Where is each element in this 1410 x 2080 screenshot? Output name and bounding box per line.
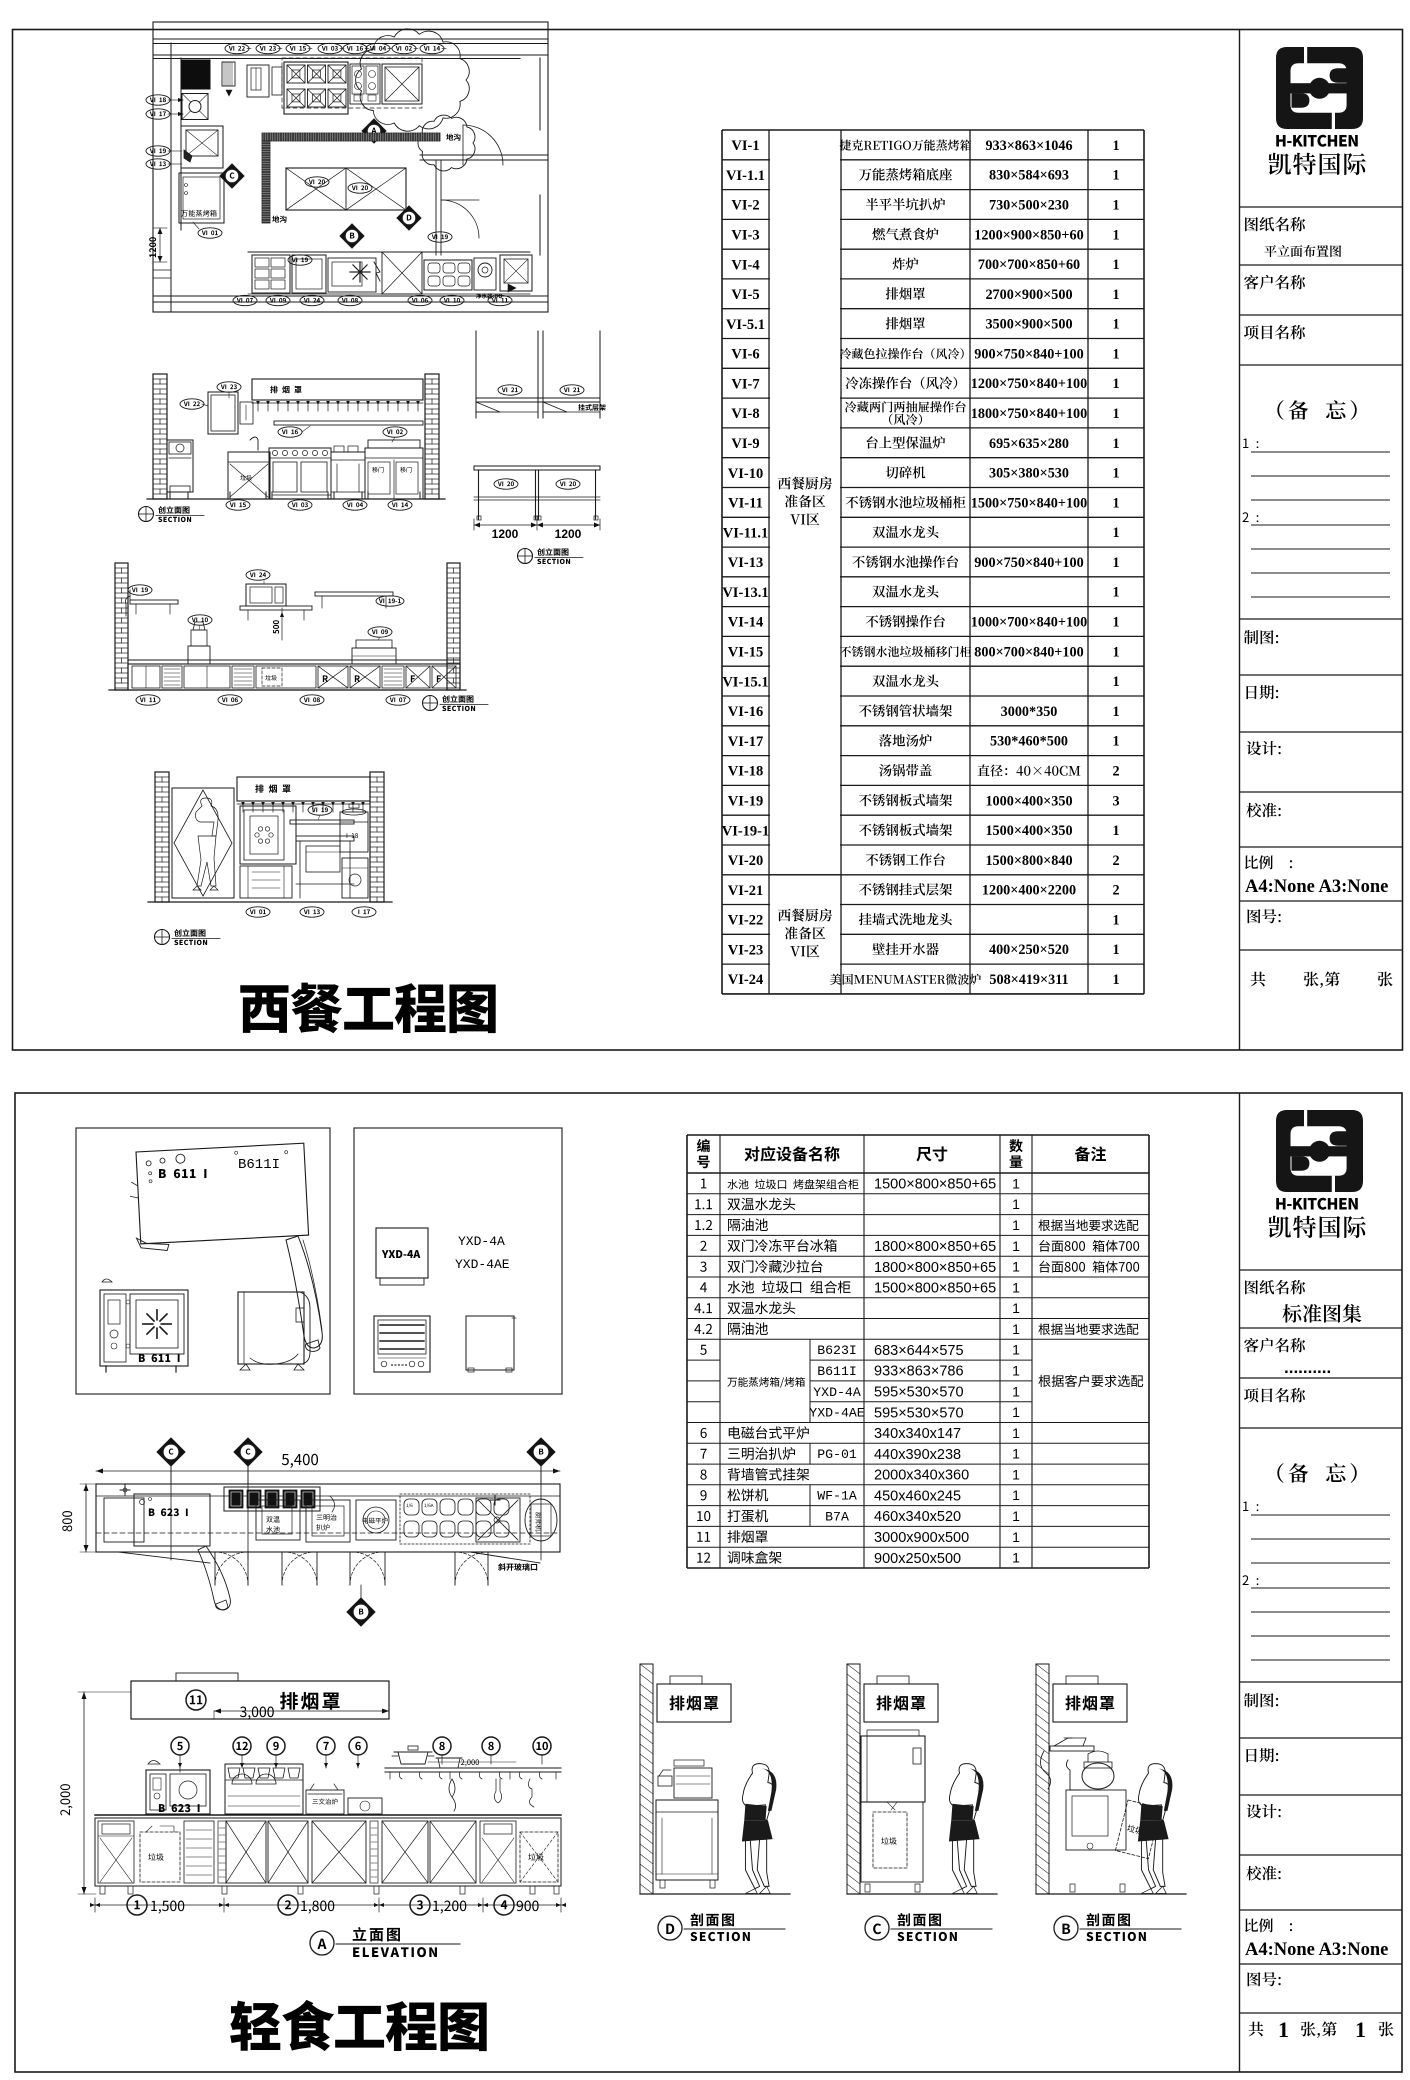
svg-text:1: 1 <box>1012 1342 1020 1358</box>
svg-text:1: 1 <box>1012 1196 1020 1212</box>
svg-text:1: 1 <box>1012 1238 1020 1254</box>
svg-text:2: 2 <box>1112 883 1119 899</box>
svg-text:1: 1 <box>1278 2017 1289 2042</box>
svg-text:1: 1 <box>1012 1300 1020 1316</box>
svg-text:VI-11: VI-11 <box>728 496 763 512</box>
svg-text:1200: 1200 <box>492 527 519 541</box>
svg-text:1: 1 <box>1112 734 1119 750</box>
svg-text:1: 1 <box>1012 1425 1020 1441</box>
svg-text:VI-23: VI-23 <box>728 942 763 958</box>
svg-text:1: 1 <box>1112 615 1119 631</box>
svg-text:1: 1 <box>1112 525 1119 541</box>
svg-text:VI-11.1: VI-11.1 <box>723 525 769 541</box>
svg-text:3000x900x500: 3000x900x500 <box>874 1530 969 1546</box>
svg-text:1: 1 <box>1112 644 1119 660</box>
svg-text:900×750×840+100: 900×750×840+100 <box>974 555 1083 571</box>
svg-text:YXD-4A: YXD-4A <box>813 1385 861 1400</box>
svg-text:460x340x520: 460x340x520 <box>874 1509 961 1525</box>
svg-text:VI-1: VI-1 <box>731 138 759 154</box>
svg-text:1: 1 <box>1112 674 1119 690</box>
svg-text:1500×800×840: 1500×800×840 <box>985 853 1072 869</box>
svg-text:VI-13.1: VI-13.1 <box>722 585 768 601</box>
svg-text:800×700×840+100: 800×700×840+100 <box>974 644 1083 660</box>
svg-text:1: 1 <box>1112 317 1119 333</box>
svg-text:1: 1 <box>1112 406 1119 422</box>
svg-text:1500×800×850+65: 1500×800×850+65 <box>874 1177 996 1193</box>
svg-text:1200×750×840+100: 1200×750×840+100 <box>971 376 1087 392</box>
svg-text:VI-4: VI-4 <box>731 257 759 273</box>
svg-text:530*460*500: 530*460*500 <box>990 734 1068 750</box>
svg-text:1: 1 <box>1112 555 1119 571</box>
svg-text:1: 1 <box>1112 376 1119 392</box>
svg-text:B611I: B611I <box>817 1364 857 1379</box>
svg-text:VI-15.1: VI-15.1 <box>722 674 768 690</box>
svg-text:1: 1 <box>1012 1467 1020 1483</box>
svg-text:1: 1 <box>1012 1446 1020 1462</box>
svg-text:1: 1 <box>1012 1550 1020 1566</box>
svg-text:1500×800×850+65: 1500×800×850+65 <box>874 1281 996 1297</box>
svg-text:1: 1 <box>1012 1487 1020 1503</box>
svg-text:VI-24: VI-24 <box>728 972 763 988</box>
svg-text:YXD-4AE: YXD-4AE <box>809 1406 864 1421</box>
svg-text:2: 2 <box>1112 764 1119 780</box>
svg-text:PG-01: PG-01 <box>817 1447 857 1462</box>
svg-text:595×530×570: 595×530×570 <box>874 1405 964 1421</box>
svg-text:VI-8: VI-8 <box>731 406 759 422</box>
svg-text:VI-18: VI-18 <box>728 764 763 780</box>
svg-text:VI-15: VI-15 <box>728 645 763 661</box>
svg-text:1: 1 <box>1012 1217 1020 1233</box>
svg-text:VI-5: VI-5 <box>731 287 759 303</box>
svg-text:450x460x245: 450x460x245 <box>874 1488 961 1504</box>
svg-text:VI-21: VI-21 <box>728 883 763 899</box>
svg-text:3: 3 <box>1112 793 1119 809</box>
svg-text:1: 1 <box>1012 1321 1020 1337</box>
svg-text:1: 1 <box>1112 168 1119 184</box>
svg-text:1500×400×350: 1500×400×350 <box>985 823 1072 839</box>
svg-text:440x390x238: 440x390x238 <box>874 1447 961 1463</box>
svg-text:1: 1 <box>1012 1175 1020 1191</box>
svg-text:2: 2 <box>1112 853 1119 869</box>
svg-text:VI-1.1: VI-1.1 <box>726 168 765 184</box>
svg-text:VI-2: VI-2 <box>731 198 759 214</box>
svg-text:..........: .......... <box>1284 1358 1331 1377</box>
svg-text:1: 1 <box>1112 138 1119 154</box>
svg-text:1: 1 <box>1012 1363 1020 1379</box>
svg-text:VI-13: VI-13 <box>728 555 763 571</box>
svg-text:VI-5.1: VI-5.1 <box>726 317 765 333</box>
svg-text:933×863×786: 933×863×786 <box>874 1364 964 1380</box>
svg-text:1: 1 <box>1112 942 1119 958</box>
svg-text:1: 1 <box>1112 704 1119 720</box>
svg-text:B611I: B611I <box>238 1157 280 1173</box>
svg-text:730×500×230: 730×500×230 <box>989 198 1069 214</box>
svg-text:1: 1 <box>1012 1404 1020 1420</box>
svg-text:B623I: B623I <box>817 1343 857 1358</box>
svg-text:2000x340x360: 2000x340x360 <box>874 1468 969 1484</box>
svg-text:VI-16: VI-16 <box>728 704 763 720</box>
svg-text:VI-17: VI-17 <box>728 734 763 750</box>
svg-text:1800×800×850+65: 1800×800×850+65 <box>874 1260 996 1276</box>
svg-text:1200×900×850+60: 1200×900×850+60 <box>974 227 1083 243</box>
svg-text:305×380×530: 305×380×530 <box>989 466 1069 482</box>
svg-text:1: 1 <box>1112 495 1119 511</box>
svg-text:700×700×850+60: 700×700×850+60 <box>978 257 1080 273</box>
svg-text:1: 1 <box>1112 585 1119 601</box>
svg-text:B7A: B7A <box>825 1510 849 1525</box>
svg-text:VI-10: VI-10 <box>728 466 763 482</box>
svg-text:1200: 1200 <box>555 527 582 541</box>
svg-text:1200×400×2200: 1200×400×2200 <box>982 883 1076 899</box>
svg-text:830×584×693: 830×584×693 <box>989 168 1069 184</box>
svg-text:1: 1 <box>1355 2017 1366 2042</box>
svg-text:1: 1 <box>1012 1383 1020 1399</box>
svg-text:VI-14: VI-14 <box>728 615 763 631</box>
svg-text:340x340x147: 340x340x147 <box>874 1426 961 1442</box>
svg-text:1500×750×840+100: 1500×750×840+100 <box>971 495 1087 511</box>
svg-text:1: 1 <box>1112 972 1119 988</box>
svg-text:900x250x500: 900x250x500 <box>874 1551 961 1567</box>
svg-text:1: 1 <box>1012 1508 1020 1524</box>
svg-text:1: 1 <box>1112 466 1119 482</box>
svg-text:VI-7: VI-7 <box>731 376 759 392</box>
svg-text:1: 1 <box>1012 1529 1020 1545</box>
svg-text:1: 1 <box>1112 912 1119 928</box>
svg-text:508×419×311: 508×419×311 <box>989 972 1068 988</box>
svg-text:1000×400×350: 1000×400×350 <box>985 793 1072 809</box>
svg-text:1: 1 <box>1112 346 1119 362</box>
svg-text:900×750×840+100: 900×750×840+100 <box>974 346 1083 362</box>
svg-text:1: 1 <box>1112 287 1119 303</box>
svg-text:1000×700×840+100: 1000×700×840+100 <box>971 615 1087 631</box>
svg-text:595×530×570: 595×530×570 <box>874 1385 964 1401</box>
svg-text:1: 1 <box>1112 257 1119 273</box>
svg-text:695×635×280: 695×635×280 <box>989 436 1069 452</box>
svg-text:1: 1 <box>1112 227 1119 243</box>
svg-text:3000*350: 3000*350 <box>1001 704 1058 720</box>
svg-text:1: 1 <box>1112 823 1119 839</box>
svg-text:1: 1 <box>1112 436 1119 452</box>
svg-text:1800×800×850+65: 1800×800×850+65 <box>874 1239 996 1255</box>
svg-text:2700×900×500: 2700×900×500 <box>985 287 1072 303</box>
svg-text:VI-20: VI-20 <box>728 853 763 869</box>
svg-text:1: 1 <box>1112 198 1119 214</box>
svg-text:WF-1A: WF-1A <box>817 1489 857 1504</box>
svg-text:VI-22: VI-22 <box>728 913 763 929</box>
svg-text:933×863×1046: 933×863×1046 <box>985 138 1072 154</box>
svg-text:1: 1 <box>1012 1279 1020 1295</box>
svg-text:VI-19-1: VI-19-1 <box>722 823 770 839</box>
svg-text:A4:None A3:None: A4:None A3:None <box>1245 877 1388 897</box>
svg-text:VI-6: VI-6 <box>731 347 759 363</box>
svg-text:683×644×575: 683×644×575 <box>874 1343 964 1359</box>
svg-text:VI-9: VI-9 <box>731 436 759 452</box>
svg-text:3500×900×500: 3500×900×500 <box>985 317 1072 333</box>
svg-text:YXD-4AE: YXD-4AE <box>455 1257 510 1272</box>
svg-text:400×250×520: 400×250×520 <box>989 942 1069 958</box>
svg-text:1: 1 <box>1012 1259 1020 1275</box>
svg-text:VI-3: VI-3 <box>731 228 759 244</box>
svg-text:1800×750×840+100: 1800×750×840+100 <box>971 406 1087 422</box>
svg-text:A4:None A3:None: A4:None A3:None <box>1245 1940 1388 1960</box>
svg-text:YXD-4A: YXD-4A <box>458 1234 505 1249</box>
svg-text:VI-19: VI-19 <box>728 794 763 810</box>
